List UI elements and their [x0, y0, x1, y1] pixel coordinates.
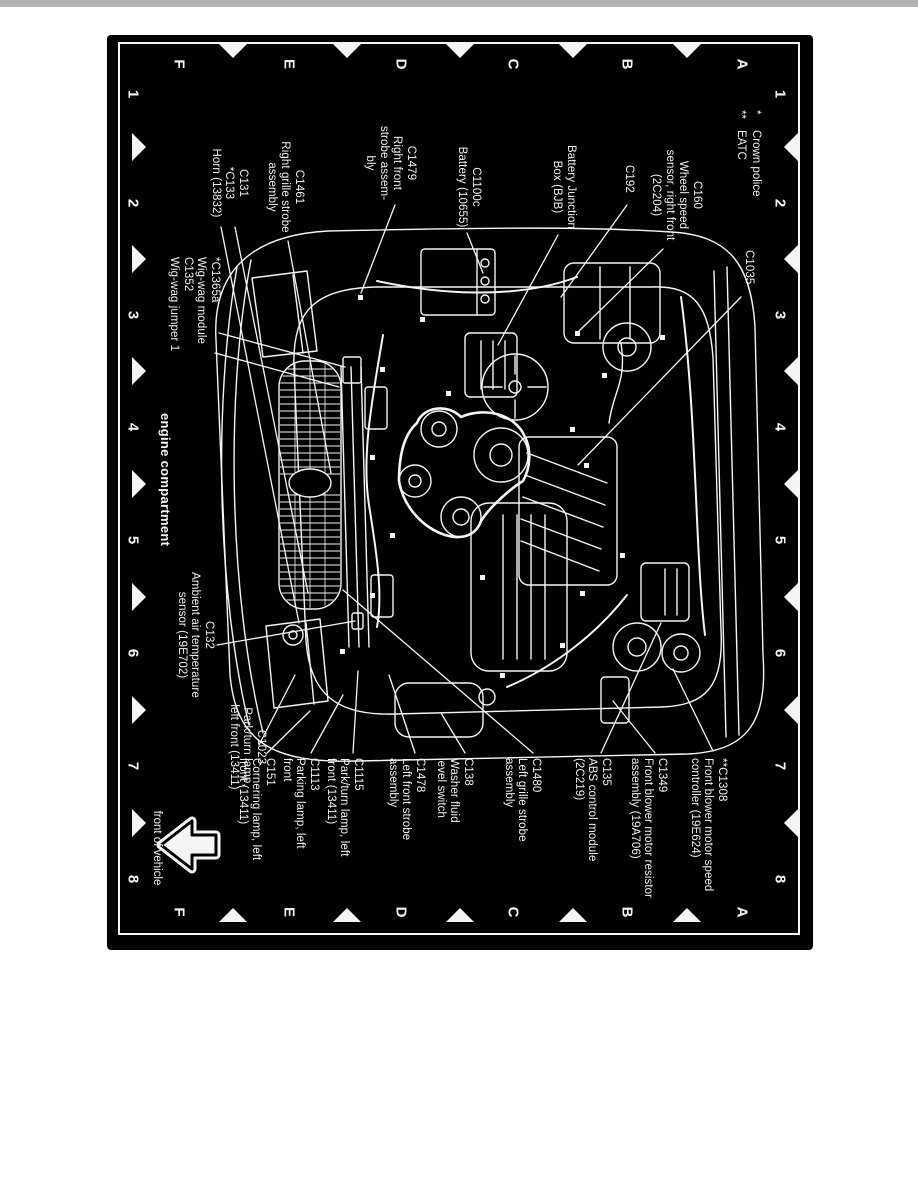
grid-col-number: 5	[125, 536, 142, 544]
grid-col-number: 7	[772, 762, 789, 770]
connector-label-line: Park/turn lamp,	[240, 667, 254, 827]
connector-label-line: Park/turn lamp, left	[337, 758, 351, 934]
grid-row-letter: C	[505, 59, 522, 70]
grid-tick-icon	[673, 44, 701, 58]
connector-label-line: C1115	[351, 758, 365, 934]
grid-tick-icon	[132, 245, 146, 273]
grid-col-number: 2	[772, 199, 789, 207]
grid-col-number: 1	[772, 90, 789, 98]
connector-label-line: *C1365a	[208, 257, 222, 397]
connector-label-line: strobe assem-	[377, 83, 391, 243]
connector-label-line: C135	[599, 758, 613, 934]
connector-label-line: C1023	[254, 667, 268, 827]
grid-col-number: 1	[125, 90, 142, 98]
connector-label-c1100c: C1100cBattery (10655)	[455, 107, 482, 267]
connector-label-line: ABS control module	[585, 758, 599, 934]
connector-label-line: C1349	[655, 758, 669, 934]
grid-tick-icon	[132, 583, 146, 611]
grid-row-letter: E	[281, 59, 298, 69]
connector-label-line: C1352	[181, 257, 195, 397]
connector-label-line: assembly	[265, 107, 279, 267]
connector-label-line: assembly (19A706)	[628, 758, 642, 934]
grid-row-letter: B	[619, 59, 636, 70]
connector-label-line: **C1308	[715, 758, 729, 934]
grid-tick-icon	[132, 470, 146, 498]
grid-tick-icon	[333, 44, 361, 58]
connector-label-line: Battery Junction	[564, 107, 578, 267]
grid-tick-icon	[784, 809, 798, 837]
grid-col-number: 4	[772, 423, 789, 431]
grid-row-letter: A	[734, 907, 751, 918]
connector-label-line: Parking lamp, left	[293, 758, 307, 934]
grid-row-letter: A	[734, 59, 751, 70]
connector-label-bjb: Battery JunctionBox (BJB)	[550, 107, 577, 267]
grid-col-number: 8	[125, 875, 142, 883]
connector-label-c1480: C1480Left grille strobeassembly	[502, 758, 543, 934]
connector-label-line: sensor (19E702)	[175, 555, 189, 715]
front-of-vehicle-label: front of vehicle	[151, 780, 163, 916]
connector-label-line: C132	[202, 555, 216, 715]
grid-tick-icon	[132, 696, 146, 724]
grid-row-letter: F	[171, 59, 188, 68]
connector-label-line: C1035	[742, 250, 756, 320]
grid-tick-icon	[132, 809, 146, 837]
figure-caption: engine compartment	[158, 413, 173, 546]
connector-label-line: (2C204)	[649, 115, 663, 275]
connector-label-line: sensor, right front	[663, 115, 677, 275]
connector-label-c160: C160Wheel speedsensor, right front(2C204…	[649, 115, 703, 275]
connector-label-c1115: C1115Park/turn lamp, leftfront (13411)	[324, 758, 365, 934]
connector-label-line: Left front strobe	[399, 758, 413, 934]
connector-label-line: level switch	[434, 758, 448, 934]
grid-tick-icon	[559, 44, 587, 58]
connector-label-c1349: C1349Front blower motor resistorassembly…	[628, 758, 669, 934]
grid-col-number: 5	[772, 536, 789, 544]
grid-col-number: 6	[125, 649, 142, 657]
connector-label-line: Battery (10655)	[455, 107, 469, 267]
grid-row-letter: D	[393, 59, 410, 70]
grid-tick-icon	[784, 696, 798, 724]
connector-label-c138: C138Washer fluidlevel switch	[434, 758, 475, 934]
grid-col-number: 2	[125, 199, 142, 207]
grid-row-letter: F	[171, 907, 188, 916]
serpentine-belt	[399, 408, 529, 537]
scanned-page: *Crown police**EATC	[0, 0, 918, 1188]
connector-label-line: Front blower motor resistor	[641, 758, 655, 934]
grid-col-number: 3	[125, 311, 142, 319]
connector-label-line: Front blower motor speed	[701, 758, 715, 934]
grid-col-number: 4	[125, 423, 142, 431]
grid-tick-icon	[784, 357, 798, 385]
connector-label-line: controller (19E624)	[688, 758, 702, 934]
connector-label-line: C192	[622, 165, 636, 235]
hood-opening	[294, 287, 721, 714]
connector-label-line: Wig-wag jumper 1	[167, 257, 181, 397]
valve-cover	[519, 437, 617, 585]
washer-reservoir	[395, 683, 483, 737]
grille-emblem	[289, 469, 331, 497]
connector-label-c135: C135ABS control module(2C219)	[572, 758, 613, 934]
connector-label-line: Right front	[390, 83, 404, 243]
connector-label-line: left front (13411)	[227, 667, 241, 827]
grid-col-number: 7	[125, 762, 142, 770]
grid-tick-icon	[132, 133, 146, 161]
connector-label-c1113: C1113Parking lamp, leftfront	[280, 758, 321, 934]
grid-col-number: 8	[772, 875, 789, 883]
connector-label-line: C160	[690, 115, 704, 275]
connector-label-line: assembly	[502, 758, 516, 934]
connector-label-line: C1461	[292, 107, 306, 267]
connector-label-c192: C192	[622, 165, 636, 235]
connector-label-line: Right grille strobe	[278, 107, 292, 267]
connector-label-line: bly	[363, 83, 377, 243]
horn	[283, 625, 303, 645]
connector-label-line: Left grille strobe	[515, 758, 529, 934]
grid-tick-icon	[446, 44, 474, 58]
connector-label-line: C138	[461, 758, 475, 934]
grid-tick-icon	[784, 583, 798, 611]
grid-col-number: 3	[772, 311, 789, 319]
rotated-diagram-wrapper: *Crown police**EATC	[0, 0, 918, 1188]
connector-label-c131: C131*C133Horn (13832)	[209, 103, 250, 263]
connector-label-line: (2C219)	[572, 758, 586, 934]
connector-label-line: front (13411)	[324, 758, 338, 934]
blower-motor	[662, 634, 700, 672]
connector-label-line: C1480	[529, 758, 543, 934]
connector-label-line: Wig-wag module	[194, 257, 208, 397]
connector-label-line: C1113	[307, 758, 321, 934]
grid-tick-icon	[132, 357, 146, 385]
left-headlamp	[266, 619, 328, 708]
connector-label-line: *C133	[222, 103, 236, 263]
connector-label-c1308: **C1308Front blower motor speedcontrolle…	[688, 758, 729, 934]
connector-label-line: C131	[236, 103, 250, 263]
connector-label-wigwag: *C1365aWig-wag moduleC1352Wig-wag jumper…	[167, 257, 221, 397]
connector-label-line: C1100c	[469, 107, 483, 267]
connector-label-c132: C132Ambient air temperaturesensor (19E70…	[175, 555, 216, 715]
connector-label-line: C1478	[413, 758, 427, 934]
connector-label-c1035: C1035	[742, 250, 756, 320]
connector-label-line: Wheel speed	[676, 115, 690, 275]
connector-label-line: Box (BJB)	[550, 107, 564, 267]
engine-compartment-figure: *Crown police**EATC	[107, 35, 813, 950]
connector-label-line: Ambient air temperature	[188, 555, 202, 715]
front-of-vehicle-arrow-icon	[161, 821, 216, 869]
grid-tick-icon	[784, 470, 798, 498]
grid-tick-icon	[784, 245, 798, 273]
connector-label-c1479: C1479Right frontstrobe assem-bly	[363, 83, 417, 243]
grid-col-number: 6	[772, 649, 789, 657]
connector-label-c1478: C1478Left front strobeassembly	[386, 758, 427, 934]
connector-label-c1023: C1023Park/turn lamp,left front (13411)	[227, 667, 268, 827]
connector-label-c1461: C1461Right grille strobeassembly	[265, 107, 306, 267]
grid-tick-icon	[219, 44, 247, 58]
connector-label-line: front	[280, 758, 294, 934]
connector-label-line: assembly	[386, 758, 400, 934]
connector-label-line: C1479	[404, 83, 418, 243]
connector-label-line: Horn (13832)	[209, 103, 223, 263]
connector-label-line: Washer fluid	[447, 758, 461, 934]
grid-tick-icon	[784, 133, 798, 161]
